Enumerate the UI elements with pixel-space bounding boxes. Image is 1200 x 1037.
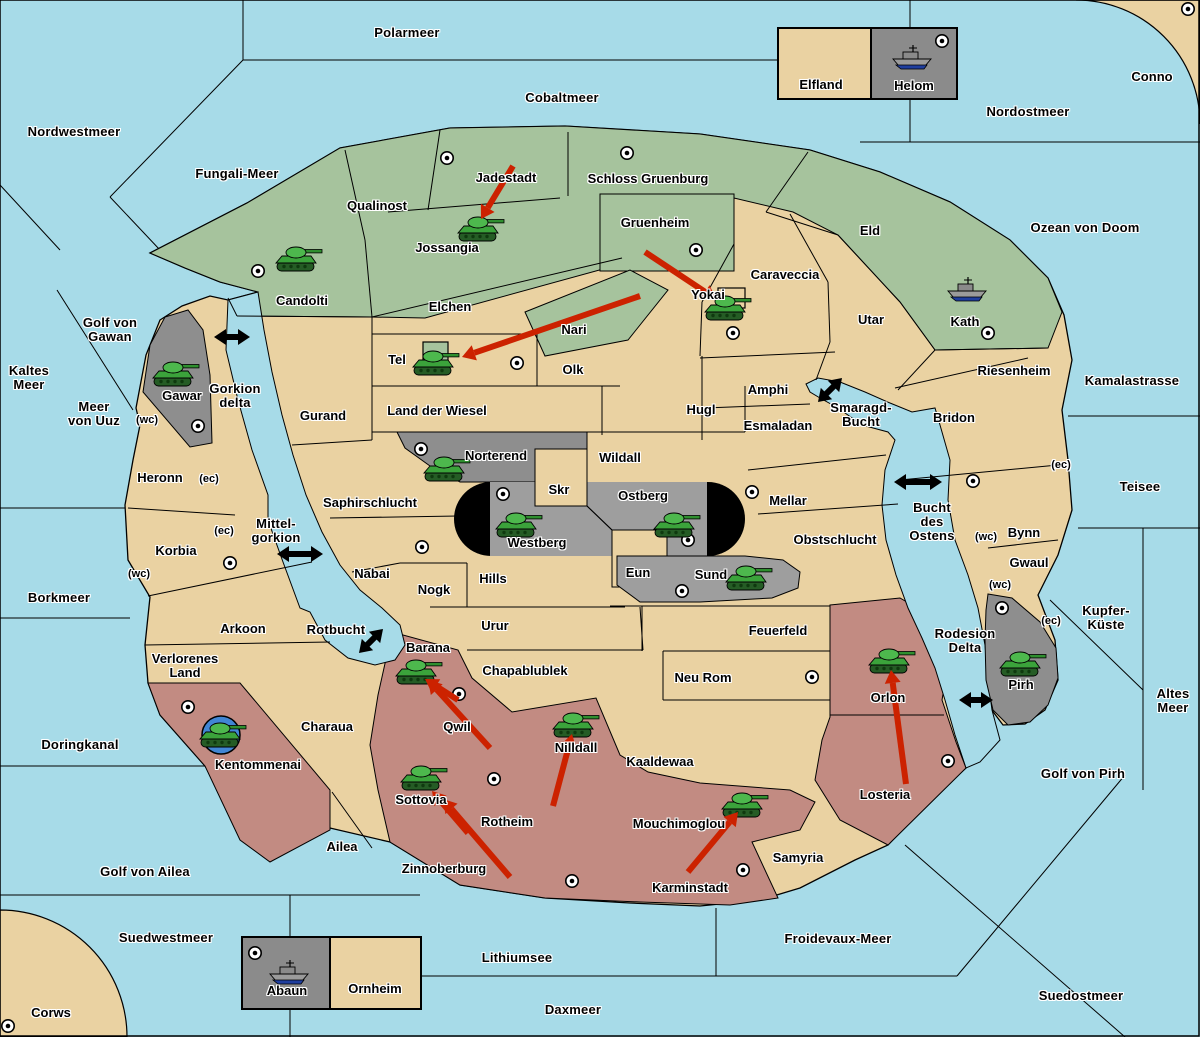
territory-label-losteria[interactable]: Losteria — [860, 788, 911, 802]
territory-label-chapablublek[interactable]: Chapablublek — [482, 664, 567, 678]
territory-label-conno[interactable]: Conno — [1131, 70, 1172, 84]
sea-label-suedostmeer[interactable]: Suedostmeer — [1039, 989, 1124, 1003]
territory-label-amphi[interactable]: Amphi — [748, 383, 788, 397]
territory-label-skr[interactable]: Skr — [549, 483, 570, 497]
territory-label-yokai[interactable]: Yokai — [691, 288, 725, 302]
sea-label-smaragd-bucht[interactable]: Smaragd- Bucht — [830, 401, 892, 429]
city-dot — [416, 541, 428, 553]
territory-label-wc-heronn: (wc) — [136, 413, 158, 427]
city-dot — [621, 147, 633, 159]
territory-label-kath[interactable]: Kath — [951, 315, 980, 329]
territory-label-arkoon[interactable]: Arkoon — [220, 622, 266, 636]
territory-label-bynn[interactable]: Bynn — [1008, 526, 1041, 540]
city-dot — [727, 327, 739, 339]
territory-label-gawar[interactable]: Gawar — [162, 389, 202, 403]
city-dot — [737, 864, 749, 876]
territory-label-ec-bynn: (ec) — [1051, 458, 1071, 472]
territory-label-neu-rom[interactable]: Neu Rom — [674, 671, 731, 685]
city-dot — [249, 947, 261, 959]
territory-label-verlorenes-land[interactable]: Verlorenes Land — [152, 652, 219, 680]
city-dot — [497, 488, 509, 500]
territory-label-pirh[interactable]: Pirh — [1008, 678, 1033, 692]
sea-label-kupfer-kueste[interactable]: Kupfer- Küste — [1082, 604, 1130, 632]
territory-label-wc-bynn: (wc) — [975, 530, 997, 544]
territory-label-helom[interactable]: Helom — [894, 79, 934, 93]
sea-label-meer-von-uuz[interactable]: Meer von Uuz — [68, 400, 120, 428]
sea-label-suedwestmeer[interactable]: Suedwestmeer — [119, 931, 213, 945]
sea-label-gorkion-delta[interactable]: Gorkion delta — [209, 382, 260, 410]
city-dot — [511, 357, 523, 369]
city-dot — [936, 35, 948, 47]
territory-label-saphirschlucht[interactable]: Saphirschlucht — [323, 496, 417, 510]
territory-label-rotheim[interactable]: Rotheim — [481, 815, 533, 829]
city-dot — [967, 475, 979, 487]
territory-label-qwil[interactable]: Qwil — [443, 720, 470, 734]
sea-label-nordostmeer[interactable]: Nordostmeer — [986, 105, 1069, 119]
territory-label-ec-pirh: (ec) — [1041, 614, 1061, 628]
territory-label-korbia[interactable]: Korbia — [155, 544, 196, 558]
territory-gruenheim[interactable] — [600, 194, 734, 271]
territory-label-gurand[interactable]: Gurand — [300, 409, 346, 423]
city-dot — [441, 152, 453, 164]
territory-label-mellar[interactable]: Mellar — [769, 494, 807, 508]
sea-label-lithiumsee[interactable]: Lithiumsee — [482, 951, 553, 965]
sea-label-golf-von-pirh[interactable]: Golf von Pirh — [1041, 767, 1125, 781]
sea-label-kaltes-meer[interactable]: Kaltes Meer — [9, 364, 49, 392]
territory-skr[interactable] — [535, 449, 587, 506]
sea-label-kamalastrasse[interactable]: Kamalastrasse — [1085, 374, 1179, 388]
city-dot — [690, 244, 702, 256]
territory-label-sund[interactable]: Sund — [695, 568, 728, 582]
territory-label-riesenheim[interactable]: Riesenheim — [978, 364, 1051, 378]
city-dot — [746, 486, 758, 498]
territory-label-abaun[interactable]: Abaun — [267, 984, 307, 998]
sea-label-fungali-meer[interactable]: Fungali-Meer — [195, 167, 278, 181]
territory-label-wc-korbia: (wc) — [128, 567, 150, 581]
territory-label-esmaladan[interactable]: Esmaladan — [744, 419, 813, 433]
city-dot — [982, 327, 994, 339]
territory-label-karminstadt[interactable]: Karminstadt — [652, 881, 728, 895]
wargame-map: PolarmeerNordwestmeerFungali-MeerCobaltm… — [0, 0, 1200, 1037]
sea-label-rotbucht[interactable]: Rotbucht — [307, 623, 366, 637]
territory-label-obstschlucht[interactable]: Obstschlucht — [793, 533, 876, 547]
territory-label-norterend[interactable]: Norterend — [465, 449, 527, 463]
territory-label-westberg[interactable]: Westberg — [508, 536, 567, 550]
territory-label-heronn[interactable]: Heronn — [137, 471, 183, 485]
city-dot — [224, 557, 236, 569]
city-dot — [182, 701, 194, 713]
sea-label-mittel-gorkion[interactable]: Mittel- gorkion — [251, 517, 300, 545]
city-dot — [2, 1020, 14, 1032]
territory-label-candolti[interactable]: Candolti — [276, 294, 328, 308]
territory-label-mouchimoglou[interactable]: Mouchimoglou — [633, 817, 725, 831]
city-dot — [566, 875, 578, 887]
sea-label-froidevaux-meer[interactable]: Froidevaux-Meer — [784, 932, 891, 946]
territory-label-land-der-wiesel[interactable]: Land der Wiesel — [387, 404, 487, 418]
territory-label-gwaul[interactable]: Gwaul — [1009, 556, 1048, 570]
sea-label-golf-von-ailea[interactable]: Golf von Ailea — [100, 865, 190, 879]
territory-label-wc-gwaul: (wc) — [989, 578, 1011, 592]
territory-label-orlon[interactable]: Orlon — [871, 691, 906, 705]
territory-label-eld[interactable]: Eld — [860, 224, 880, 238]
territory-label-olk[interactable]: Olk — [563, 363, 584, 377]
sea-label-cobaltmeer[interactable]: Cobaltmeer — [525, 91, 599, 105]
territory-label-tel[interactable]: Tel — [388, 353, 406, 367]
territory-label-jadestadt[interactable]: Jadestadt — [476, 171, 537, 185]
territory-label-ec-heronn: (ec) — [199, 472, 219, 486]
territory-label-nogk[interactable]: Nogk — [418, 583, 451, 597]
city-dot — [806, 671, 818, 683]
territory-label-jossangia[interactable]: Jossangia — [415, 241, 479, 255]
city-dot — [415, 443, 427, 455]
sea-label-golf-von-gawan[interactable]: Golf von Gawan — [83, 316, 137, 344]
territory-label-urur[interactable]: Urur — [481, 619, 508, 633]
sea-label-ozean-von-doom[interactable]: Ozean von Doom — [1031, 221, 1140, 235]
territory-label-nari[interactable]: Nari — [561, 323, 586, 337]
territory-label-zinnoberburg[interactable]: Zinnoberburg — [402, 862, 487, 876]
sea-label-bucht-des-ostens[interactable]: Bucht des Ostens — [909, 501, 954, 543]
territory-label-barana[interactable]: Barana — [406, 641, 450, 655]
territory-label-corws[interactable]: Corws — [31, 1006, 71, 1020]
territory-label-ornheim[interactable]: Ornheim — [348, 982, 401, 996]
territory-label-gruenheim[interactable]: Gruenheim — [621, 216, 690, 230]
sea-label-doringkanal[interactable]: Doringkanal — [41, 738, 118, 752]
city-dot — [1182, 3, 1194, 15]
territory-label-ostberg[interactable]: Ostberg — [618, 489, 668, 503]
territory-label-ailea[interactable]: Ailea — [326, 840, 357, 854]
territory-label-eun[interactable]: Eun — [626, 566, 651, 580]
territory-label-ec-korbia: (ec) — [214, 524, 234, 538]
territory-label-bridon[interactable]: Bridon — [933, 411, 975, 425]
territory-label-kaaldewaa[interactable]: Kaaldewaa — [626, 755, 693, 769]
sea-label-nordwestmeer[interactable]: Nordwestmeer — [28, 125, 121, 139]
territory-label-hills[interactable]: Hills — [479, 572, 506, 586]
sea-label-teisee[interactable]: Teisee — [1120, 480, 1161, 494]
territory-label-hugl[interactable]: Hugl — [687, 403, 716, 417]
territory-label-elchen[interactable]: Elchen — [429, 300, 472, 314]
city-dot — [192, 420, 204, 432]
sea-label-altes-meer[interactable]: Altes Meer — [1157, 687, 1190, 715]
sea-label-borkmeer[interactable]: Borkmeer — [28, 591, 90, 605]
territory-label-utar[interactable]: Utar — [858, 313, 884, 327]
territory-label-qualinost[interactable]: Qualinost — [347, 199, 407, 213]
territory-label-nabai[interactable]: Nabai — [354, 567, 389, 581]
city-dot — [996, 602, 1008, 614]
city-dot — [488, 773, 500, 785]
territory-label-wildall[interactable]: Wildall — [599, 451, 641, 465]
territory-label-elfland[interactable]: Elfland — [799, 78, 842, 92]
sea-label-rodesion-delta[interactable]: Rodesion Delta — [935, 627, 996, 655]
territory-label-schloss-gruenburg[interactable]: Schloss Gruenburg — [588, 172, 709, 186]
territory-label-feuerfeld[interactable]: Feuerfeld — [749, 624, 808, 638]
territory-label-samyria[interactable]: Samyria — [773, 851, 824, 865]
city-dot — [942, 755, 954, 767]
territory-label-sottovia[interactable]: Sottovia — [395, 793, 446, 807]
territory-label-kentommenai[interactable]: Kentommenai — [215, 758, 301, 772]
sea-label-daxmeer[interactable]: Daxmeer — [545, 1003, 601, 1017]
territory-label-charaua[interactable]: Charaua — [301, 720, 353, 734]
map-canvas — [0, 0, 1200, 1037]
territory-label-nilldall[interactable]: Nilldall — [555, 741, 598, 755]
territory-ornheim[interactable] — [330, 937, 421, 1009]
city-dot — [676, 585, 688, 597]
city-dot — [252, 265, 264, 277]
sea-label-polarmeer[interactable]: Polarmeer — [374, 26, 439, 40]
territory-label-caraveccia[interactable]: Caraveccia — [751, 268, 820, 282]
